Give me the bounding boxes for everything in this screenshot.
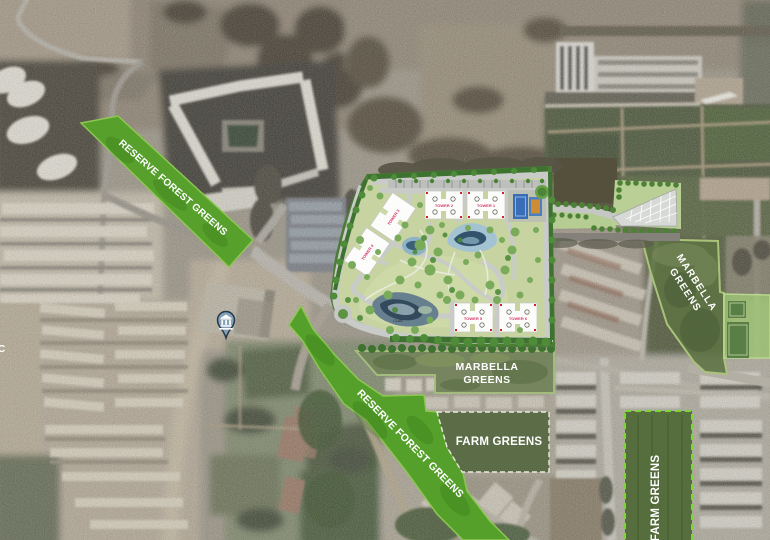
svg-text:TOWER 5: TOWER 5 xyxy=(464,316,483,321)
svg-text:CLUB: CLUB xyxy=(393,319,403,323)
svg-text:FARM GREENS: FARM GREENS xyxy=(456,436,543,448)
svg-text:TOWER 1: TOWER 1 xyxy=(477,203,496,208)
svg-text:GREENS: GREENS xyxy=(463,374,510,386)
svg-text:TOWER 2: TOWER 2 xyxy=(435,203,454,208)
svg-text:TOWER 6: TOWER 6 xyxy=(509,316,528,321)
svg-text:MARBELLA: MARBELLA xyxy=(456,361,519,373)
svg-text:FARM GREENS: FARM GREENS xyxy=(650,455,662,540)
svg-text:C: C xyxy=(0,344,5,355)
